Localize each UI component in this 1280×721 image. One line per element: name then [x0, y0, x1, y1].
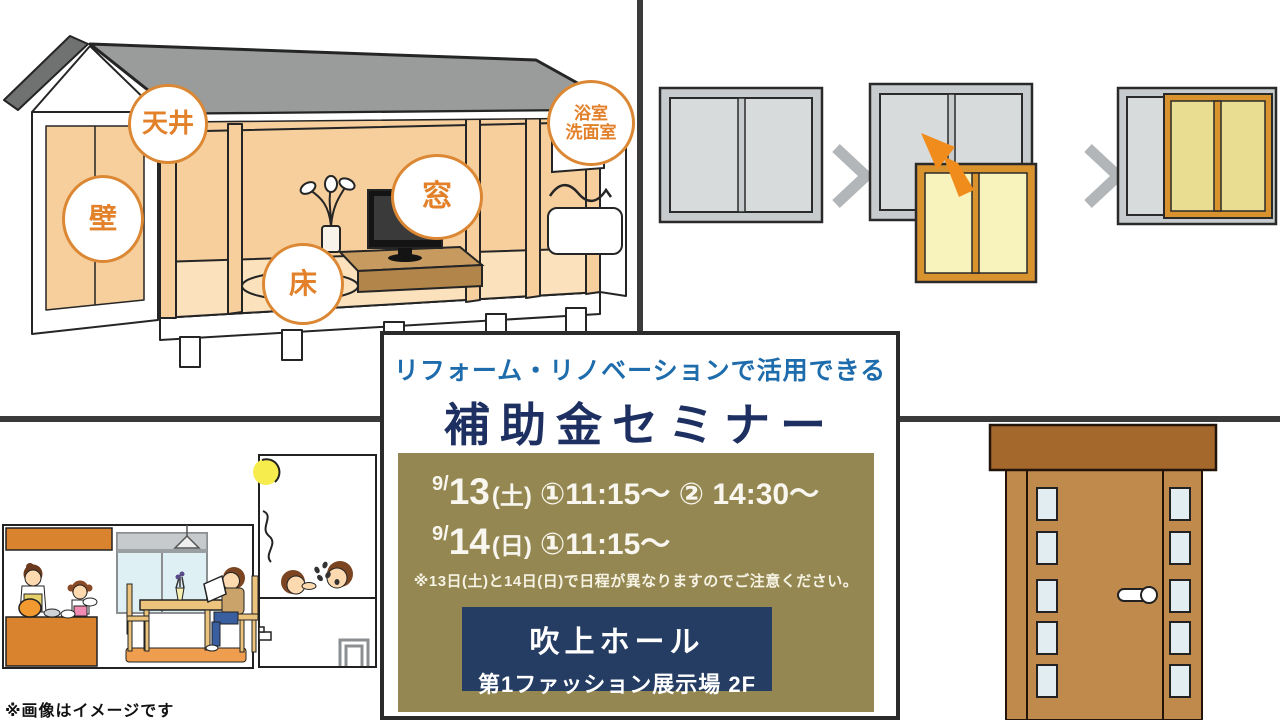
label-floor-text: 床: [289, 268, 317, 299]
schedule-month: 9/: [432, 473, 449, 495]
vase-with-flowers: [176, 572, 185, 601]
tv-neck: [398, 248, 412, 255]
foundation-pillar: [180, 337, 200, 367]
horizontal-divider-left: [0, 416, 382, 422]
range-hood: [6, 528, 112, 550]
label-window: 窓: [391, 154, 483, 240]
schedule-times: ①11:15～: [540, 528, 670, 561]
door-illustration: [900, 416, 1280, 720]
schedule-note: ※13日(土)と14日(日)で日程が異なりますのでご注意ください。: [398, 570, 874, 591]
venue-hall: 第1ファッション展示場 2F: [462, 667, 772, 699]
chevron-right-icon: [836, 148, 866, 204]
kitchen-scene: [3, 525, 258, 668]
bathtub: [548, 208, 622, 254]
schedule-month: 9/: [432, 523, 449, 545]
door-handle: [1118, 587, 1157, 603]
foundation-pillar: [282, 330, 302, 360]
cooking-pot: [19, 599, 41, 617]
label-ceiling-text: 天井: [142, 109, 194, 138]
label-window-text: 窓: [422, 180, 452, 214]
window-during: [870, 84, 1036, 282]
seminar-title: 補助金セミナー: [384, 389, 896, 455]
family-scenes-illustration: [0, 416, 380, 720]
label-bathroom: 浴室 洗面室: [547, 80, 635, 166]
window-before: [660, 88, 822, 222]
schedule-row-sun: 9/14(日)①11:15～: [398, 523, 874, 560]
seminar-subtitle: リフォーム・リノベーションで活用できる: [384, 351, 896, 387]
plant-leaf: [325, 176, 337, 192]
label-wall-text: 壁: [89, 203, 117, 234]
horizontal-divider-right: [896, 416, 1280, 422]
schedule-row-sat: 9/13(土)①11:15～ ② 14:30～: [398, 473, 874, 510]
vertical-divider: [637, 0, 643, 333]
chevron-right-icon: [1088, 148, 1118, 204]
flyer-canvas: { "colors": { "accent_orange": "#e2812a"…: [0, 0, 1280, 720]
plant-pot: [322, 226, 340, 252]
schedule-box: 9/13(土)①11:15～ ② 14:30～ 9/14(日)①11:15～ ※…: [398, 453, 874, 712]
seminar-panel: リフォーム・リノベーションで活用できる 補助金セミナー 9/13(土)①11:1…: [380, 331, 900, 720]
venue-box: 吹上ホール 第1ファッション展示場 2F: [462, 607, 772, 691]
window-after: [1118, 88, 1276, 224]
schedule-times: ①11:15～ ② 14:30～: [540, 478, 819, 511]
door-header: [990, 425, 1216, 470]
bath-scene: [253, 455, 376, 667]
door-left-jamb: [1006, 470, 1027, 720]
wall-post: [526, 116, 540, 298]
schedule-weekday: (日): [492, 533, 532, 560]
label-bathroom-line1: 浴室: [574, 104, 608, 123]
schedule-weekday: (土): [492, 483, 532, 510]
table-top: [140, 600, 228, 610]
wall-post: [228, 124, 242, 314]
label-ceiling: 天井: [128, 84, 208, 164]
label-wall: 壁: [62, 175, 144, 263]
label-floor: 床: [262, 243, 344, 325]
label-bathroom-line2: 洗面室: [566, 123, 617, 142]
schedule-day: 14: [449, 521, 490, 562]
image-disclaimer: ※画像はイメージです: [5, 697, 174, 721]
schedule-day: 13: [449, 471, 490, 512]
tv-base: [388, 254, 422, 262]
venue-name: 吹上ホール: [462, 617, 772, 661]
